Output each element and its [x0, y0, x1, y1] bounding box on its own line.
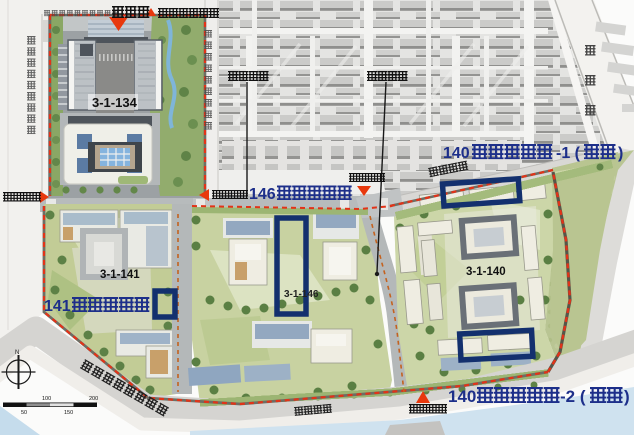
svg-text:140: 140 [448, 387, 476, 406]
svg-text:141: 141 [44, 298, 71, 315]
svg-text:150: 150 [64, 410, 73, 416]
svg-text:140: 140 [443, 145, 470, 162]
svg-text:N: N [15, 350, 19, 356]
svg-text:50: 50 [21, 410, 27, 416]
svg-text:-2 (: -2 ( [560, 387, 586, 406]
svg-text:-1 (: -1 ( [556, 145, 581, 162]
svg-text:3-1-146: 3-1-146 [284, 289, 319, 300]
svg-text:100: 100 [42, 396, 51, 402]
svg-text:3-1-134: 3-1-134 [92, 95, 138, 110]
svg-text:146: 146 [249, 186, 276, 203]
svg-text:3-1-140: 3-1-140 [466, 266, 506, 278]
svg-text:): ) [618, 145, 623, 162]
svg-text:200: 200 [89, 396, 98, 402]
svg-text:): ) [624, 387, 630, 406]
svg-text:3-1-141: 3-1-141 [100, 269, 140, 281]
